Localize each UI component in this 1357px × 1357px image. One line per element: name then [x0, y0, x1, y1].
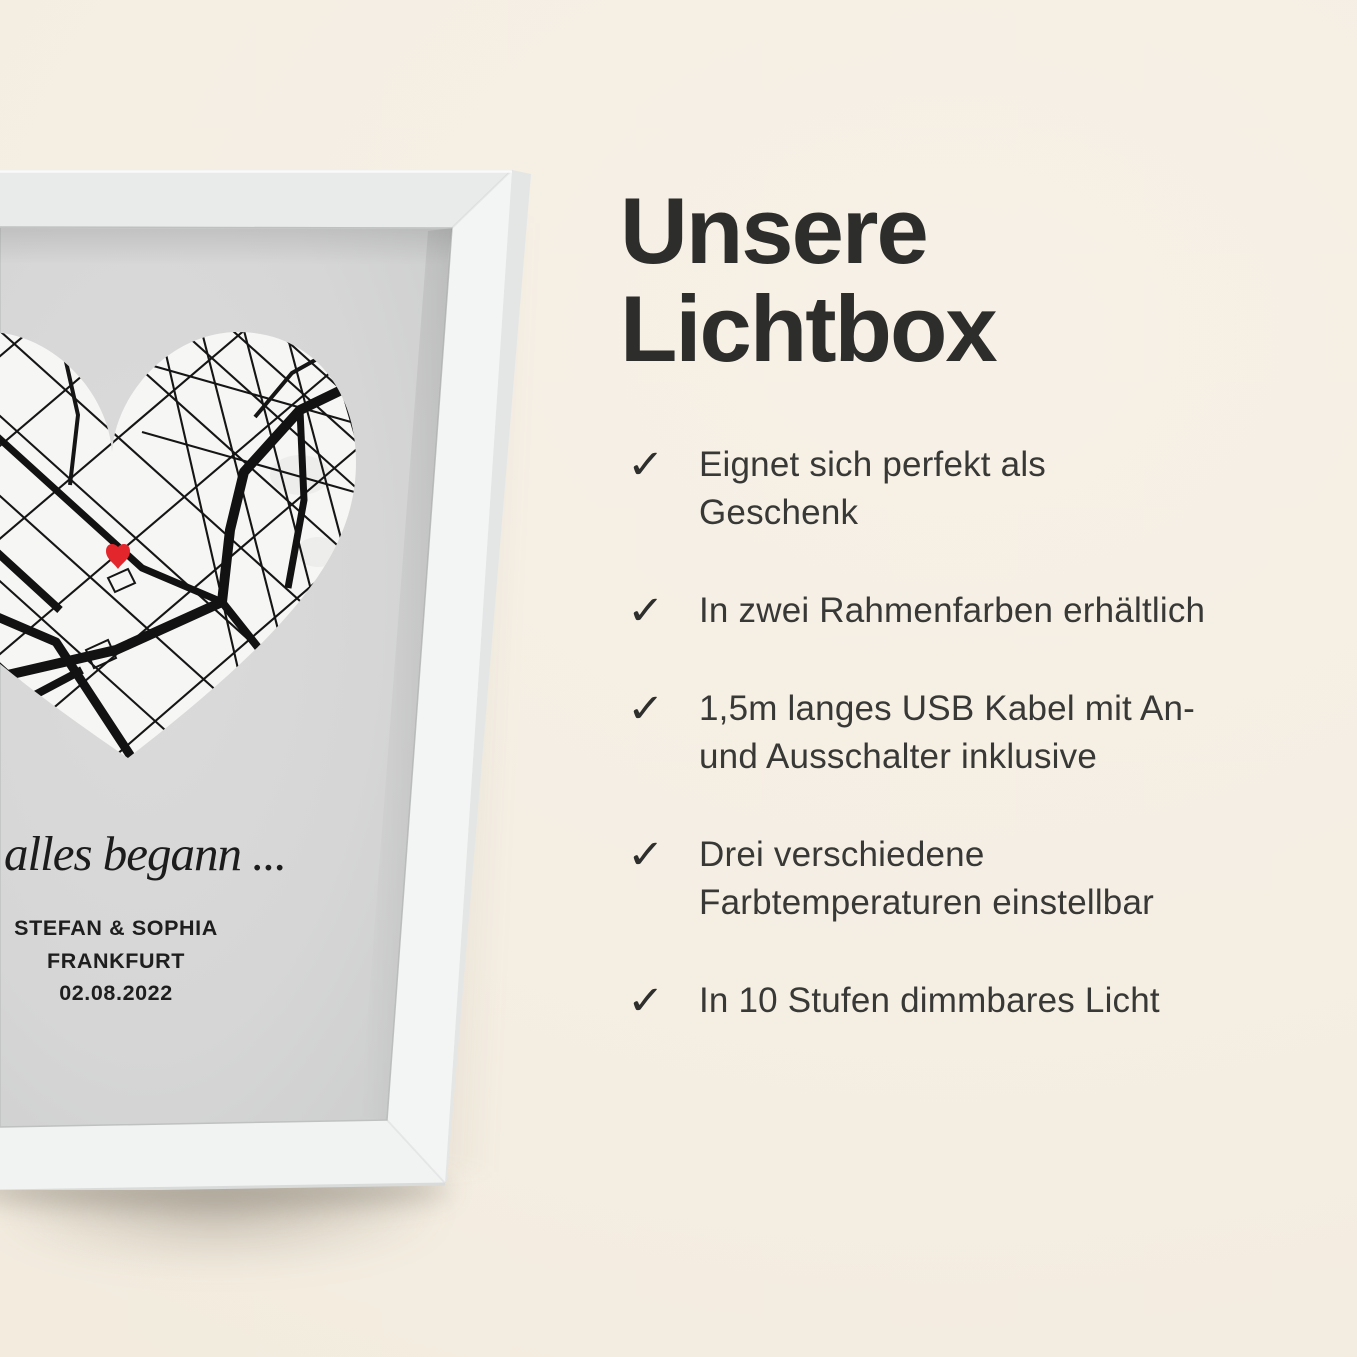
checkmark-icon: ✓	[627, 441, 708, 489]
couple-names: STEFAN & SOPHIA	[14, 916, 218, 940]
feature-item: ✓ 1,5m langes USB Kabel mit An- und Auss…	[627, 685, 1327, 781]
feature-item: ✓ In zwei Rahmenfarben erhältlich	[627, 587, 1327, 635]
feature-text: Eignet sich perfekt als Geschenk	[699, 441, 1046, 537]
feature-text: 1,5m langes USB Kabel mit An- und Aussch…	[699, 685, 1195, 781]
checkmark-icon: ✓	[627, 587, 708, 635]
product-hero-image: alles begann ... STEFAN & SOPHIA FRANKFU…	[0, 0, 1357, 1357]
feature-text: Drei verschiedene Farbtemperaturen einst…	[699, 831, 1154, 927]
framed-lightbox-photo: alles begann ... STEFAN & SOPHIA FRANKFU…	[0, 0, 560, 1357]
checkmark-icon: ✓	[627, 685, 708, 733]
feature-text: In 10 Stufen dimmbares Licht	[699, 977, 1160, 1025]
city-name: FRANKFURT	[47, 949, 185, 973]
lightbox-frame-graphic: alles begann ... STEFAN & SOPHIA FRANKFU…	[0, 170, 540, 1190]
feature-item: ✓ In 10 Stufen dimmbares Licht	[627, 977, 1327, 1025]
feature-item: ✓ Drei verschiedene Farbtemperaturen ein…	[627, 831, 1327, 927]
checkmark-icon: ✓	[627, 977, 708, 1025]
feature-text: In zwei Rahmenfarben erhältlich	[699, 587, 1205, 635]
anniversary-date: 02.08.2022	[59, 981, 173, 1005]
feature-list: ✓ Eignet sich perfekt als Geschenk ✓ In …	[627, 441, 1327, 1025]
checkmark-icon: ✓	[627, 831, 708, 879]
feature-item: ✓ Eignet sich perfekt als Geschenk	[627, 441, 1327, 537]
page-title: Unsere Lichtbox	[620, 182, 1160, 378]
script-caption: alles begann ...	[4, 826, 286, 881]
